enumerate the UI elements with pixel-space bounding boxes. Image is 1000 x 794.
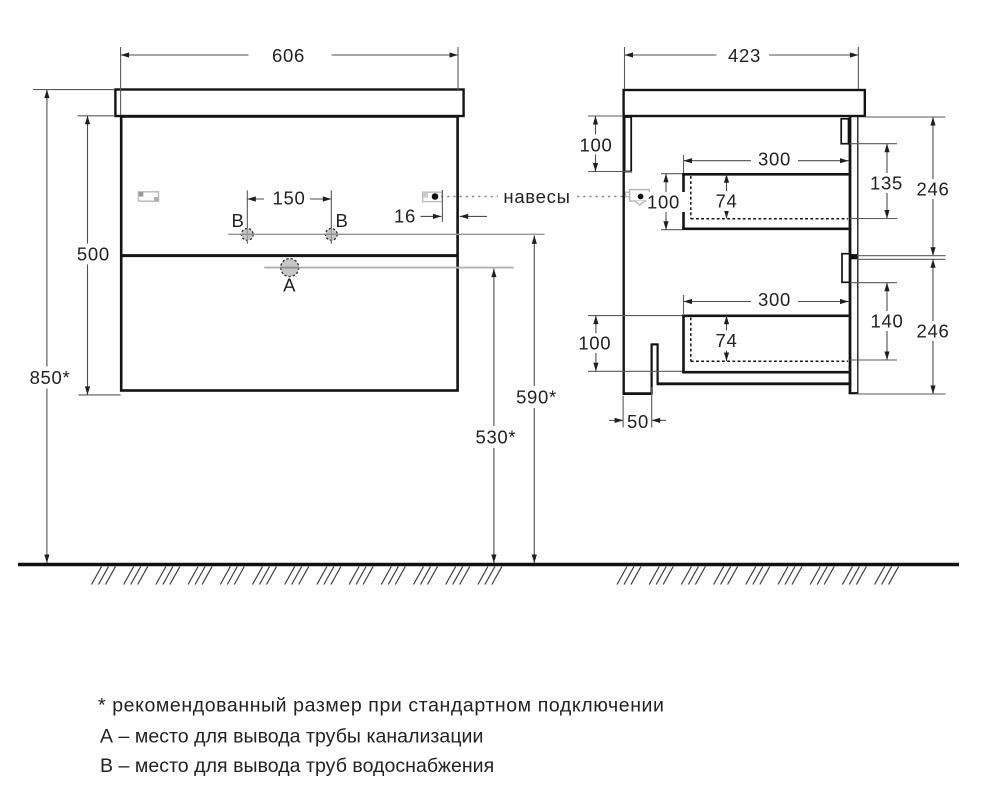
- svg-text:150: 150: [273, 188, 306, 209]
- svg-text:100: 100: [578, 333, 611, 354]
- svg-text:246: 246: [917, 321, 950, 342]
- svg-text:500: 500: [77, 244, 110, 265]
- svg-text:100: 100: [647, 192, 680, 213]
- svg-text:135: 135: [870, 173, 903, 194]
- svg-text:50: 50: [627, 411, 649, 432]
- svg-text:590*: 590*: [516, 386, 557, 407]
- svg-text:850*: 850*: [30, 367, 71, 388]
- svg-text:423: 423: [728, 45, 761, 66]
- svg-text:74: 74: [716, 191, 738, 212]
- svg-text:В: В: [231, 210, 244, 231]
- svg-text:300: 300: [758, 289, 791, 310]
- svg-text:А – место для вывода трубы кан: А – место для вывода трубы канализации: [100, 726, 483, 748]
- svg-text:74: 74: [716, 330, 738, 351]
- svg-text:навесы: навесы: [503, 186, 570, 207]
- svg-text:100: 100: [580, 134, 613, 155]
- svg-text:* рекомендованный размер при с: * рекомендованный размер при стандартном…: [98, 695, 665, 717]
- svg-text:А: А: [283, 275, 296, 296]
- svg-text:В – место для вывода труб водо: В – место для вывода труб водоснабжения: [100, 755, 494, 777]
- svg-text:В: В: [335, 210, 348, 231]
- svg-text:140: 140: [871, 311, 904, 332]
- svg-text:530*: 530*: [475, 427, 516, 448]
- svg-text:246: 246: [917, 179, 950, 200]
- svg-text:300: 300: [758, 149, 791, 170]
- svg-text:606: 606: [272, 45, 305, 66]
- svg-text:16: 16: [394, 206, 416, 227]
